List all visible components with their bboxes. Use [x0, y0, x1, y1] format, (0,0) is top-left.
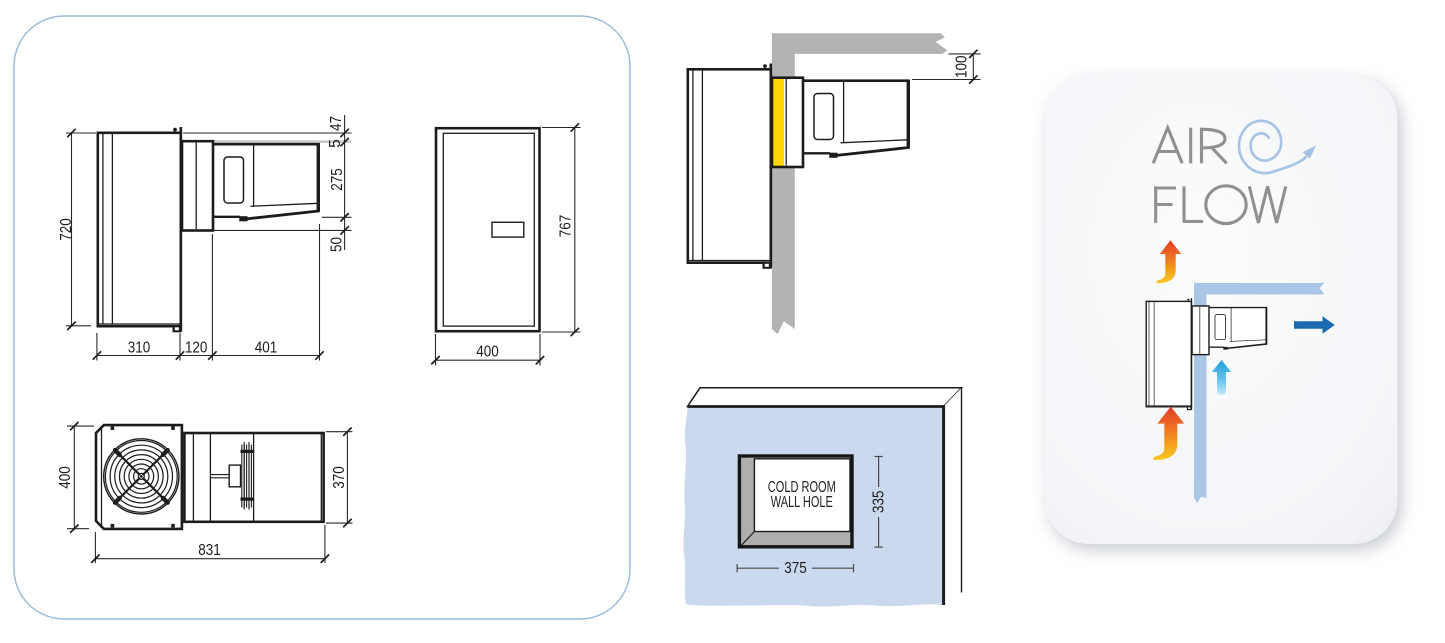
svg-text:400: 400 [57, 466, 74, 489]
svg-text:WALL HOLE: WALL HOLE [771, 494, 833, 511]
svg-text:47: 47 [328, 116, 345, 131]
svg-text:370: 370 [331, 466, 348, 489]
svg-text:5: 5 [327, 139, 344, 148]
svg-text:100: 100 [954, 55, 971, 78]
svg-text:767: 767 [558, 215, 575, 238]
svg-text:401: 401 [255, 340, 278, 357]
svg-text:310: 310 [128, 340, 151, 357]
svg-text:335: 335 [871, 491, 888, 514]
svg-text:720: 720 [58, 218, 75, 241]
svg-text:120: 120 [185, 340, 208, 357]
svg-text:400: 400 [476, 344, 499, 361]
svg-text:275: 275 [329, 168, 346, 191]
svg-text:375: 375 [784, 560, 807, 577]
svg-text:831: 831 [198, 542, 221, 559]
svg-text:50: 50 [329, 237, 346, 252]
